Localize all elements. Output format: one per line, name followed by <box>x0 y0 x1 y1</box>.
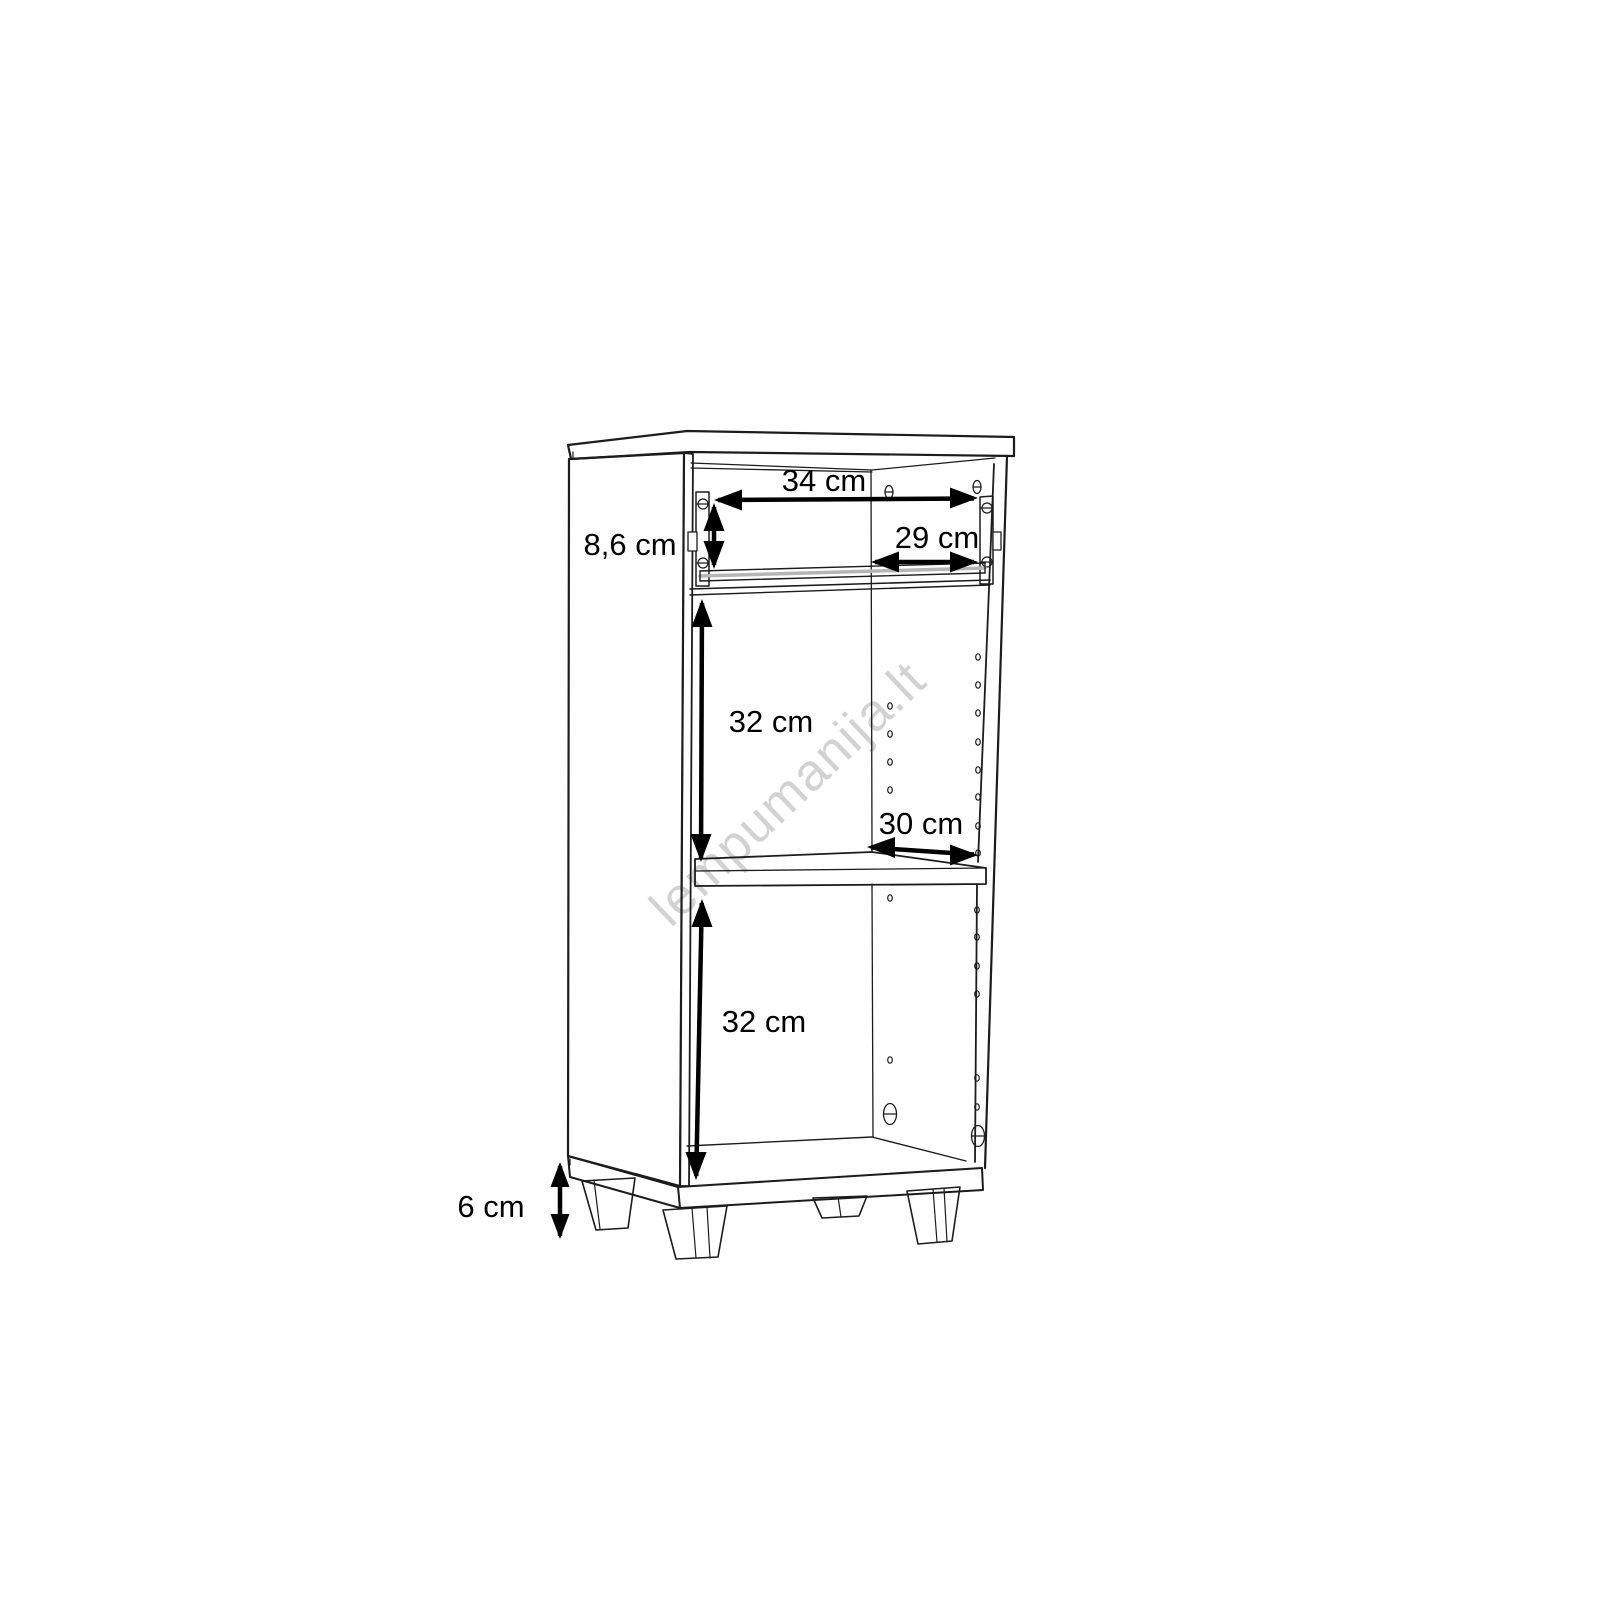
dimension-arrow-shelf-depth <box>867 837 978 866</box>
pin-hole <box>976 682 981 688</box>
dimension-label-inner-width-top: 34 cm <box>782 463 866 498</box>
dimension-arrow-upper-compartment-height <box>691 599 713 862</box>
dimension-label-top-section-height: 8,6 cm <box>583 527 676 562</box>
pin-hole <box>888 787 893 793</box>
cabinet-dimension-drawing: lempumanija.lt <box>0 0 1600 1600</box>
pin-hole <box>888 759 893 765</box>
dimension-label-leg-height: 6 cm <box>457 1189 524 1224</box>
pin-hole <box>976 767 981 773</box>
dimension-label-upper-compartment-height: 32 cm <box>729 704 813 739</box>
rail-notch-icon <box>688 532 697 551</box>
pin-hole <box>976 710 981 716</box>
drawer-slide-rail <box>700 563 985 581</box>
drawer-rail-left <box>688 492 709 586</box>
leg-front-left <box>663 1206 727 1259</box>
leg-front-right <box>907 1187 960 1244</box>
leg-back-left <box>582 1178 635 1230</box>
drawer-opening-bottom-edge-inner <box>690 585 990 595</box>
watermark-text: lempumanija.lt <box>639 650 937 937</box>
pin-hole <box>888 895 893 901</box>
pin-hole <box>888 1057 893 1063</box>
left-front-edge <box>680 453 693 1186</box>
drawer-opening-bottom-edge <box>690 580 990 589</box>
dimension-arrows <box>551 488 979 1240</box>
pin-hole <box>976 794 981 800</box>
dimension-label-shelf-depth: 30 cm <box>879 806 963 841</box>
dimension-label-lower-compartment-height: 32 cm <box>722 1004 806 1039</box>
rail-notch-icon <box>993 532 1001 550</box>
diagram-canvas: lempumanija.lt <box>0 0 1600 1600</box>
interior-floor-edges <box>687 1137 966 1161</box>
pin-hole <box>976 739 981 745</box>
rail-screw-hole-icon <box>697 499 709 568</box>
dimension-arrow-leg-height <box>551 1162 570 1239</box>
pin-hole <box>976 654 981 660</box>
dimension-label-drawer-inner-width: 29 cm <box>895 520 979 555</box>
left-side-panel <box>568 453 693 1186</box>
